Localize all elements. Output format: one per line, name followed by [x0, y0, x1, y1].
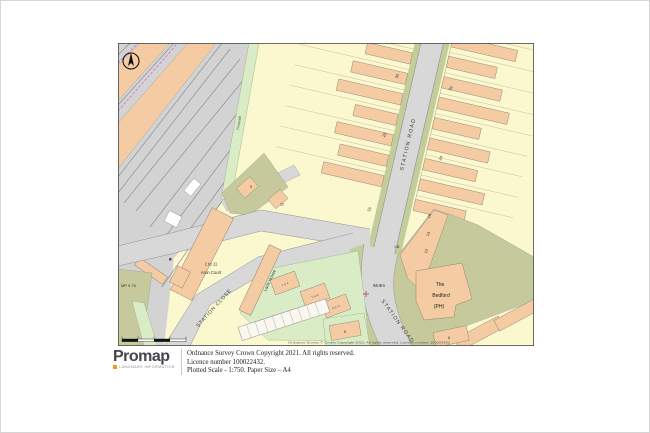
house-number: 12: [280, 203, 284, 207]
copyright-line-1: Ordnance Survey Crown Copyright 2021. Al…: [187, 350, 354, 359]
letterbox-label: LB: [395, 244, 400, 249]
map-edge-copyright: Ordnance Survey © Crown Copyright 2021. …: [288, 341, 450, 345]
copyright-line-2: Licence number 100022432.: [187, 359, 354, 368]
bedford-label1: The: [436, 282, 445, 288]
bedford-label2: Bedford: [432, 293, 450, 299]
copyright-line-3: Plotted Scale - 1:750. Paper Size – A4: [187, 367, 354, 376]
copyright-block: Ordnance Survey Crown Copyright 2021. Al…: [187, 349, 354, 376]
bedford-label3: (PH): [434, 304, 445, 310]
map-plot: STATION ROAD 33 25 15 34 24: [118, 43, 534, 346]
spot-height-label: 66.9m: [373, 283, 385, 288]
landmark-logo-icon: [113, 365, 117, 369]
house-number: 9: [250, 185, 252, 189]
arun-court-label1: 1 to 11: [205, 262, 218, 267]
landmark-label: LANDMARK INFORMATION: [119, 365, 175, 369]
milepost-label: MP 9.75: [121, 283, 137, 288]
arun-court-label2: Arun Court: [201, 270, 222, 275]
promap-plot-page: STATION ROAD 33 25 15 34 24: [0, 0, 650, 433]
promap-wordmark: Promap: [113, 349, 179, 364]
footer-divider: [181, 349, 182, 375]
promap-logo: Promap LANDMARK INFORMATION: [113, 349, 179, 369]
footer: Promap LANDMARK INFORMATION Ordnance Sur…: [113, 349, 354, 379]
